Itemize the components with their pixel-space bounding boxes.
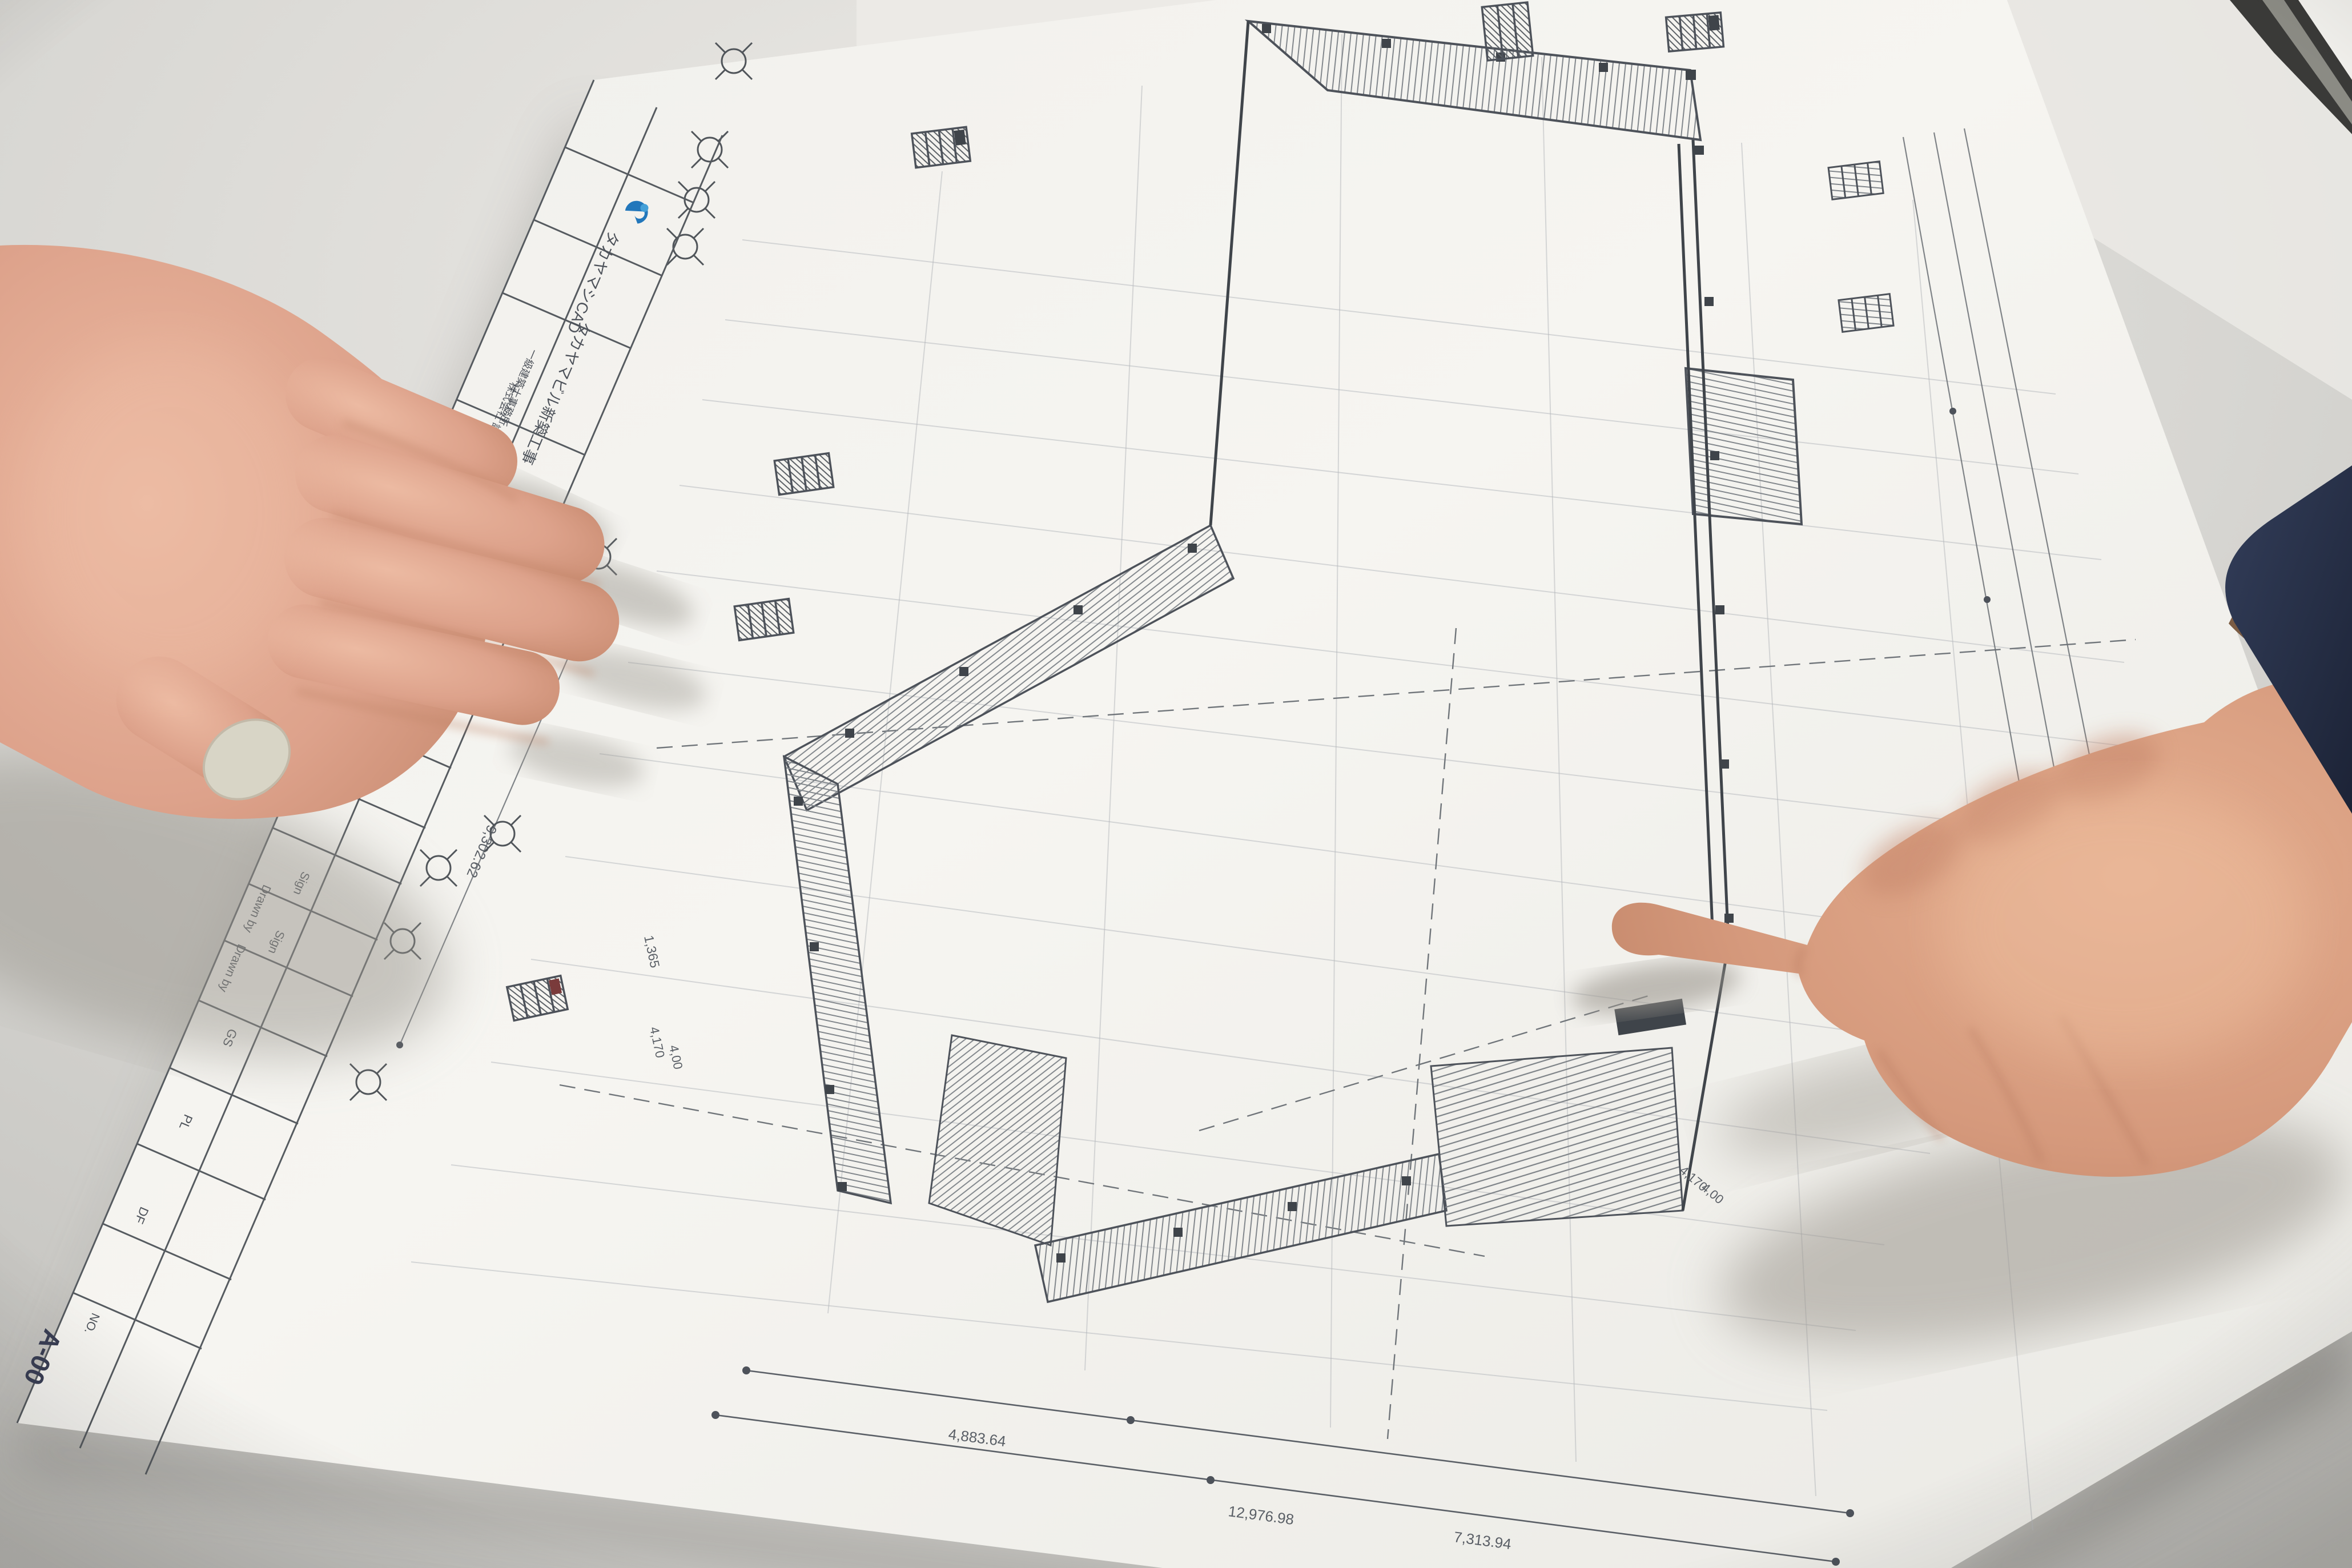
photo-scene: 4,883.64 12,976.98 7,313.94 9,302.62 1,3… <box>0 0 2352 1568</box>
photo-canvas: 4,883.64 12,976.98 7,313.94 9,302.62 1,3… <box>0 0 2352 1568</box>
plan-entry-steps <box>1431 1048 1683 1226</box>
